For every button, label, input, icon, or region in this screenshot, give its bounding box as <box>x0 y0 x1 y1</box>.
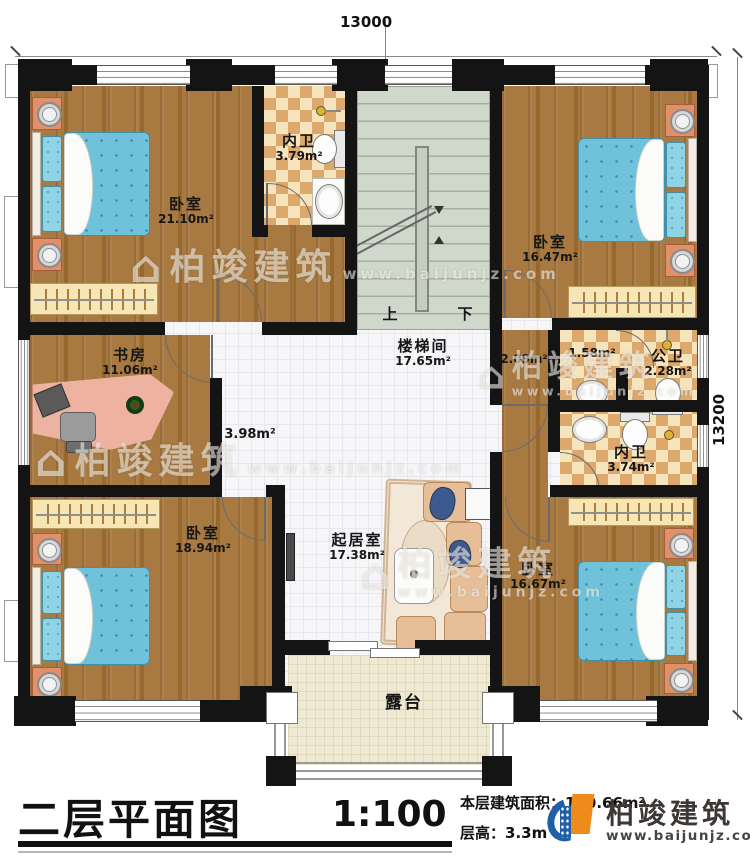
nightstand <box>32 97 62 130</box>
room-label-bedroom-br: 卧室 16.67m² <box>510 561 566 591</box>
nightstand <box>32 238 62 271</box>
floor-height-label: 层高： <box>460 824 505 842</box>
bed-sheet <box>64 568 93 664</box>
brand-logo-icon <box>548 790 600 852</box>
bed <box>578 138 665 242</box>
pillow <box>42 571 62 614</box>
dimension-tick <box>10 46 21 57</box>
right-dimension-label: 13200 <box>710 394 728 446</box>
sink <box>572 416 607 443</box>
pilaster <box>186 59 232 91</box>
stair-rail <box>415 146 429 312</box>
pillow <box>666 565 686 609</box>
room-label-stairwell: 楼梯间 17.65m² <box>395 338 451 368</box>
dimension-tick <box>711 46 722 57</box>
closet <box>568 286 696 318</box>
pilaster <box>332 59 388 91</box>
stair-arrow-icon <box>434 236 444 244</box>
floor-plan-page: 13000 13200 上 下 <box>0 0 750 860</box>
door-leaf <box>264 497 266 541</box>
railing-post <box>482 756 512 786</box>
tv-icon <box>286 533 295 581</box>
room-label-bath-top: 内卫 3.79m² <box>275 133 322 163</box>
window <box>385 65 452 85</box>
flowers-icon <box>406 566 422 582</box>
room-label-bedroom-tl: 卧室 21.10m² <box>158 196 214 226</box>
bed <box>63 567 150 665</box>
bed-sheet <box>636 562 665 660</box>
pillow <box>42 186 62 232</box>
lamp-icon <box>670 249 695 274</box>
nightstand <box>665 244 695 277</box>
pillow <box>42 618 62 661</box>
nightstand <box>32 533 62 565</box>
bed-headboard <box>688 138 697 242</box>
closet <box>30 283 158 315</box>
window <box>697 335 709 378</box>
brand-name: 柏竣建筑 <box>606 792 734 832</box>
pillow <box>666 142 686 188</box>
sofa-seat <box>450 566 488 612</box>
window <box>540 700 657 722</box>
pillow <box>666 612 686 656</box>
stair-arrow-icon <box>434 206 444 214</box>
lamp-icon <box>669 533 694 558</box>
room-label-living: 起居室 17.38m² <box>329 532 385 562</box>
title-underline <box>18 841 452 847</box>
sliding-door <box>370 648 420 658</box>
bed <box>63 132 150 236</box>
stair-down-label: 下 <box>457 306 474 323</box>
bed-sheet <box>635 139 664 241</box>
right-dimension-line <box>737 57 738 720</box>
door-leaf <box>217 274 219 322</box>
room-label-terrace: 露台 <box>385 694 423 713</box>
door-leaf <box>504 270 506 318</box>
railing-post <box>266 692 298 724</box>
desk-chair <box>60 412 96 442</box>
railing-post <box>266 756 296 786</box>
top-dimension-label: 13000 <box>340 13 392 31</box>
window <box>18 340 30 465</box>
bed-sheet <box>64 133 93 235</box>
door-leaf <box>266 183 268 225</box>
brand-url: www.baijunjz.com <box>606 828 750 844</box>
lamp-icon <box>37 243 62 268</box>
floor-height-row: 层高：3.3m <box>460 822 547 843</box>
title-underline-thin <box>18 851 452 853</box>
nightstand <box>664 663 694 694</box>
plan-title: 二层平面图 <box>18 786 243 847</box>
faucet-icon <box>664 430 674 440</box>
window <box>697 425 709 467</box>
railing-post <box>482 692 514 724</box>
bed <box>578 561 666 661</box>
room-label-public-bath: 公卫 2.28m² <box>644 348 691 378</box>
area-label-bath-lobby: 1.58m² <box>568 347 615 360</box>
pillow <box>42 136 62 182</box>
window <box>275 65 337 85</box>
closet <box>568 498 694 526</box>
window <box>555 65 645 85</box>
nightstand <box>664 528 694 559</box>
bed-headboard <box>32 132 41 236</box>
lamp-icon <box>669 668 694 693</box>
stair-up-label: 上 <box>382 306 399 323</box>
room-label-bath-right: 内卫 3.74m² <box>607 444 654 474</box>
door-leaf <box>502 404 548 406</box>
door-leaf <box>211 335 213 383</box>
nightstand <box>32 667 62 699</box>
side-table <box>465 488 493 520</box>
bed-headboard <box>32 567 41 665</box>
lamp-icon <box>37 538 62 563</box>
plan-scale: 1:100 <box>332 794 447 835</box>
floor-height-value: 3.3m <box>505 824 547 842</box>
window <box>75 700 200 722</box>
room-label-bedroom-bl: 卧室 18.94m² <box>175 525 231 555</box>
area-label-hall: 3.98m² <box>224 428 275 443</box>
room-label-study: 书房 11.06m² <box>102 347 158 377</box>
window <box>97 65 190 85</box>
area-label-corridor: 2.09m² <box>500 353 547 366</box>
pilaster <box>14 696 76 726</box>
lamp-icon <box>37 672 62 697</box>
top-dimension-line <box>15 56 717 57</box>
nightstand <box>665 104 695 137</box>
lamp-icon <box>37 102 62 127</box>
bed-headboard <box>688 561 697 661</box>
desk-chair-base <box>66 441 92 453</box>
plant-icon <box>126 396 144 414</box>
door-leaf <box>548 497 550 542</box>
closet <box>32 499 160 529</box>
pillow <box>666 192 686 238</box>
lamp-icon <box>670 109 695 134</box>
room-label-bedroom-tr: 卧室 16.47m² <box>522 234 578 264</box>
sink <box>315 184 343 219</box>
